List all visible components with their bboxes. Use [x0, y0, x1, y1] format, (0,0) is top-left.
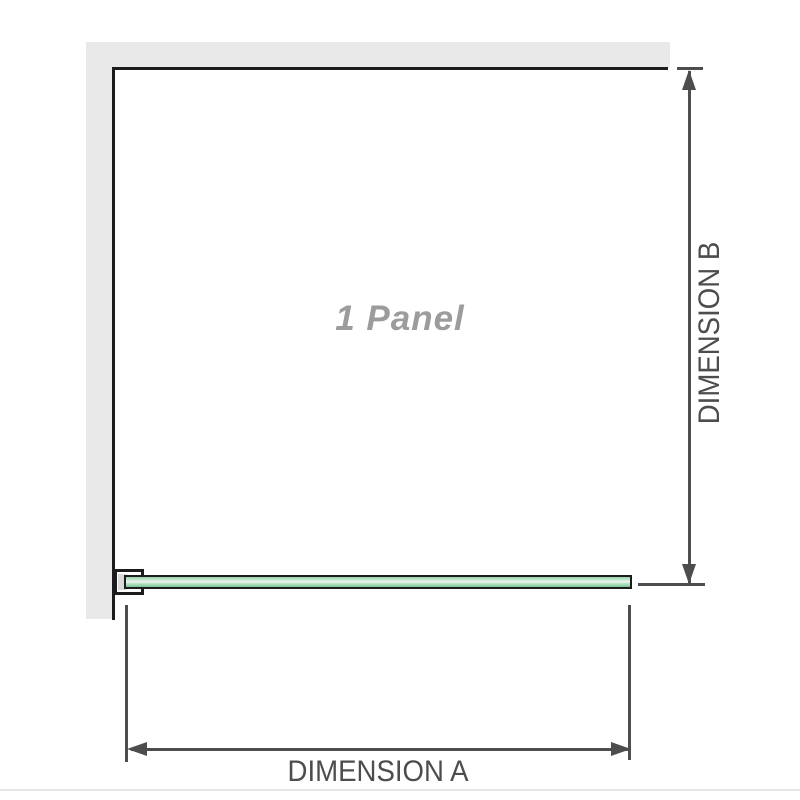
wall-inner-edge-horizontal [112, 67, 668, 70]
glass-panel-bar [124, 575, 632, 589]
arrow-down-icon [682, 564, 696, 584]
dimension-b-label: DIMENSION B [693, 242, 727, 424]
arrow-left-icon [127, 742, 147, 756]
dimension-a-left-tick [125, 605, 128, 762]
panel-count-label: 1 Panel [335, 299, 465, 339]
bottom-divider [0, 789, 800, 791]
wall-top [86, 42, 670, 68]
dimension-b-line [688, 71, 691, 584]
wall-inner-edge-vertical [112, 67, 115, 620]
wall-left [86, 42, 113, 619]
panel-dimension-diagram: DIMENSION B DIMENSION A 1 Panel [0, 0, 800, 800]
arrow-right-icon [611, 742, 631, 756]
dimension-a-right-tick [628, 605, 631, 760]
arrow-up-icon [682, 70, 696, 90]
dimension-a-label: DIMENSION A [288, 755, 469, 789]
dimension-a-line [131, 748, 628, 751]
